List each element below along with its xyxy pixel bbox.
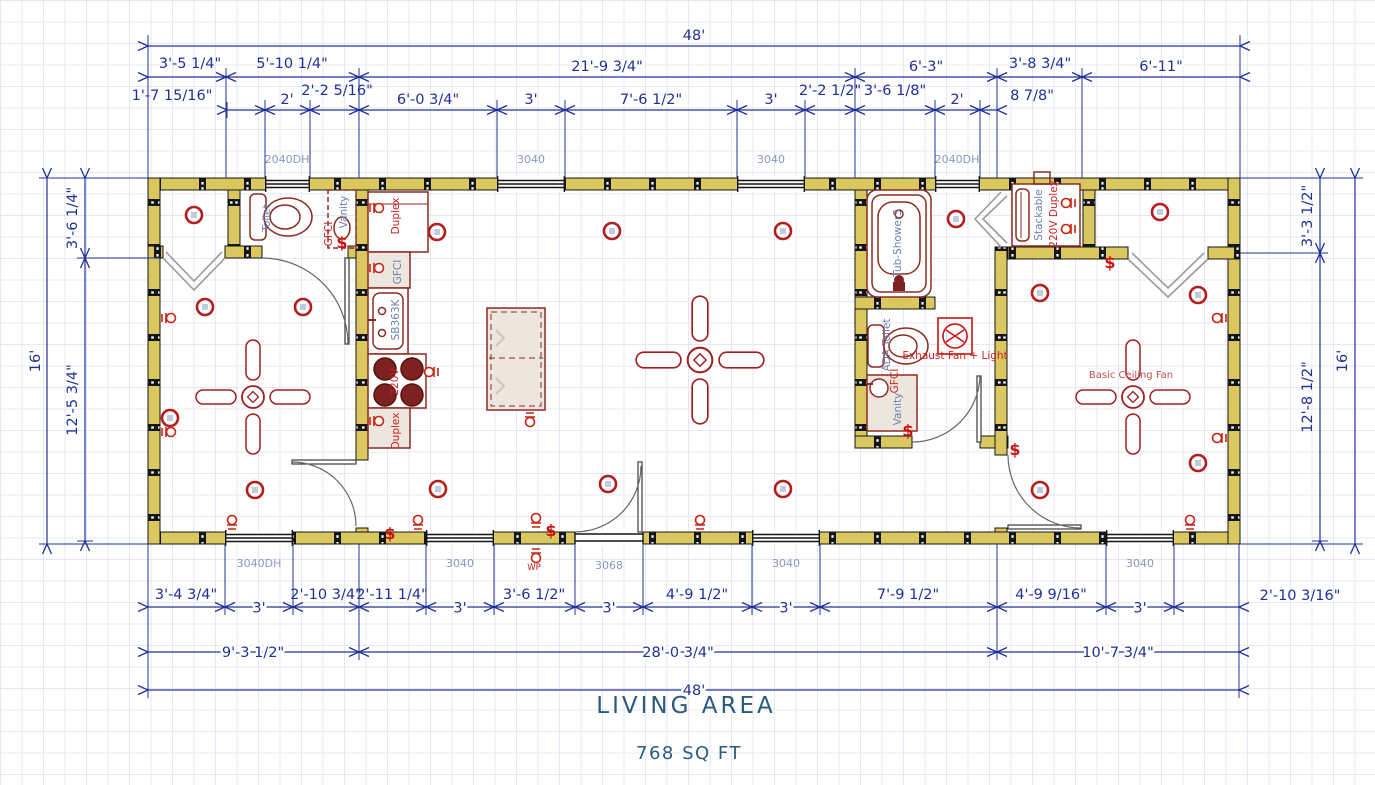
dim-label: 2'-2 1/2" bbox=[799, 83, 861, 99]
dim-label: 3'-5 1/4" bbox=[159, 56, 221, 72]
dim-label: 3' bbox=[764, 92, 777, 108]
duplex-label: Duplex bbox=[390, 413, 402, 450]
dim-label: 7'-9 1/2" bbox=[877, 587, 939, 603]
dim-label: 2' bbox=[950, 92, 963, 108]
dim-label: 2'-11 1/4" bbox=[356, 587, 428, 603]
plan-title: LIVING AREA bbox=[596, 693, 775, 719]
switch: $ bbox=[545, 521, 556, 540]
duplex-outlet bbox=[1213, 313, 1227, 323]
dim-label: 2'-10 3/16" bbox=[1260, 588, 1341, 604]
recessed-light bbox=[604, 223, 620, 239]
dim-label: 4'-9 9/16" bbox=[1015, 587, 1087, 603]
duplex-outlet bbox=[162, 313, 176, 323]
floor-plan-drawing: $ $ $ $ $ $ Toilet Vanity GFCI Duplex GF… bbox=[0, 0, 1375, 785]
dim-label: 3'-3 1/2" bbox=[1300, 185, 1316, 247]
switch: $ bbox=[384, 524, 395, 543]
dim-label: 3'-4 3/4" bbox=[155, 587, 217, 603]
kitchen-counter-lower bbox=[368, 408, 410, 448]
window-label: 3040 bbox=[517, 153, 545, 166]
tub-label: Tub-Shower3 bbox=[892, 209, 904, 278]
recessed-light bbox=[1032, 482, 1048, 498]
recessed-light bbox=[1152, 204, 1168, 220]
front-door bbox=[575, 462, 643, 546]
dim-label: 3'-6 1/4" bbox=[65, 187, 81, 249]
window-label: 3040 bbox=[757, 153, 785, 166]
dim-label: 48' bbox=[683, 28, 705, 44]
vanity-label: Vanity bbox=[892, 393, 904, 426]
dim-label: 28'-0 3/4" bbox=[642, 645, 714, 661]
bedroom-left-door bbox=[292, 460, 356, 526]
switch: $ bbox=[1009, 440, 1020, 459]
window-label: 3040DH bbox=[237, 557, 282, 570]
dim-label: 6'-11" bbox=[1139, 59, 1183, 75]
ceiling-fan-living-room bbox=[636, 296, 764, 424]
wp-outlet bbox=[531, 549, 541, 563]
toilet bbox=[250, 194, 312, 240]
recessed-light bbox=[197, 299, 213, 315]
range-outlet-label: 220V bbox=[389, 368, 401, 396]
bathroom-door bbox=[912, 376, 981, 442]
dim-label: 21'-9 3/4" bbox=[571, 59, 643, 75]
recessed-light bbox=[247, 482, 263, 498]
duplex-outlet bbox=[413, 516, 423, 530]
dim-label: 3' bbox=[1133, 601, 1146, 617]
wp-outlet bbox=[531, 514, 541, 528]
duplex-outlet bbox=[695, 516, 705, 530]
recessed-light bbox=[600, 476, 616, 492]
recessed-light bbox=[1032, 285, 1048, 301]
dim-label: 16' bbox=[28, 350, 44, 372]
duplex-outlet bbox=[162, 427, 176, 437]
recessed-light bbox=[162, 410, 178, 426]
window-label: 2040DH bbox=[265, 153, 310, 166]
switch: $ bbox=[336, 233, 347, 252]
dim-label: 6'-3" bbox=[909, 59, 943, 75]
dim-label: 3' bbox=[453, 601, 466, 617]
dim-label: 1'-7 15/16" bbox=[132, 88, 213, 104]
dim-label: 9'-3 1/2" bbox=[222, 645, 284, 661]
dim-label: 5'-10 1/4" bbox=[256, 56, 328, 72]
wp-outlet-label: WP bbox=[527, 563, 541, 573]
ada-toilet-label: ADA Toilet bbox=[881, 318, 893, 371]
dim-label: 16' bbox=[1335, 350, 1351, 372]
dim-label: 8 7/8" bbox=[1010, 88, 1054, 104]
dim-label: 3'-6 1/8" bbox=[864, 83, 926, 99]
dim-label: 12'-8 1/2" bbox=[1300, 361, 1316, 433]
ceiling-fan-label: Basic Ceiling Fan bbox=[1089, 370, 1173, 381]
dim-label: 3'-6 1/2" bbox=[503, 587, 565, 603]
dim-label: 2'-2 5/16" bbox=[301, 83, 373, 99]
stackable-label: Stackable bbox=[1033, 189, 1045, 240]
gfci-label: GFCI bbox=[392, 260, 404, 285]
dim-label: 3' bbox=[602, 601, 615, 617]
sink-base-label: SB363K bbox=[390, 298, 402, 340]
recessed-light bbox=[948, 211, 964, 227]
dim-label: 2' bbox=[280, 92, 293, 108]
dim-label: 7'-6 1/2" bbox=[620, 92, 682, 108]
duplex-outlet bbox=[425, 367, 439, 377]
duplex-outlet bbox=[227, 516, 237, 530]
dim-label: 3' bbox=[779, 601, 792, 617]
plan-area: 768 SQ FT bbox=[636, 743, 742, 764]
window-label: 3040 bbox=[446, 557, 474, 570]
gfci-label: GFCI bbox=[323, 222, 335, 247]
window-label: 3040 bbox=[772, 557, 800, 570]
recessed-light bbox=[430, 481, 446, 497]
recessed-light bbox=[775, 481, 791, 497]
window-label: 3040 bbox=[1126, 557, 1154, 570]
dim-label: 6'-0 3/4" bbox=[397, 92, 459, 108]
recessed-light bbox=[1190, 455, 1206, 471]
exhaust-fan-label: Exhaust Fan + Light bbox=[902, 350, 1007, 362]
dim-label: 10'-7 3/4" bbox=[1082, 645, 1154, 661]
kitchen-sink bbox=[368, 288, 408, 354]
recessed-light bbox=[775, 223, 791, 239]
stackable-outlet-label: 220V Duplex bbox=[1048, 180, 1060, 247]
toilet-label: Toilet bbox=[261, 204, 273, 232]
vanity-label: Vanity bbox=[338, 196, 350, 229]
ceiling-fan-left-bedroom bbox=[196, 340, 310, 454]
door-label: 3068 bbox=[595, 559, 623, 572]
duplex-outlet bbox=[1213, 433, 1227, 443]
island-outlet bbox=[525, 413, 535, 427]
recessed-light bbox=[186, 207, 202, 223]
recessed-light bbox=[295, 299, 311, 315]
duplex-outlet bbox=[1185, 516, 1195, 530]
dim-label: 3' bbox=[252, 601, 265, 617]
dim-label: 3'-8 3/4" bbox=[1009, 56, 1071, 72]
switch: $ bbox=[902, 421, 913, 440]
kitchen-island bbox=[487, 308, 545, 410]
dim-label: 2'-10 3/4" bbox=[290, 587, 362, 603]
recessed-light bbox=[1190, 287, 1206, 303]
switch: $ bbox=[1104, 253, 1115, 272]
recessed-light bbox=[429, 224, 445, 240]
ceiling-fan-right-bedroom bbox=[1076, 340, 1190, 454]
gfci-label: GFCI bbox=[889, 369, 901, 394]
exhaust-fan-light bbox=[938, 318, 972, 354]
closet-left-bifold-door bbox=[163, 252, 225, 290]
dim-label: 3' bbox=[524, 92, 537, 108]
dim-label: 4'-9 1/2" bbox=[666, 587, 728, 603]
floor-plan-canvas: $ $ $ $ $ $ Toilet Vanity GFCI Duplex GF… bbox=[0, 0, 1375, 785]
laundry-bifold-door bbox=[975, 192, 1007, 247]
window-label: 2040DH bbox=[935, 153, 980, 166]
dim-label: 12'-5 3/4" bbox=[65, 364, 81, 436]
duplex-label: Duplex bbox=[390, 198, 402, 235]
